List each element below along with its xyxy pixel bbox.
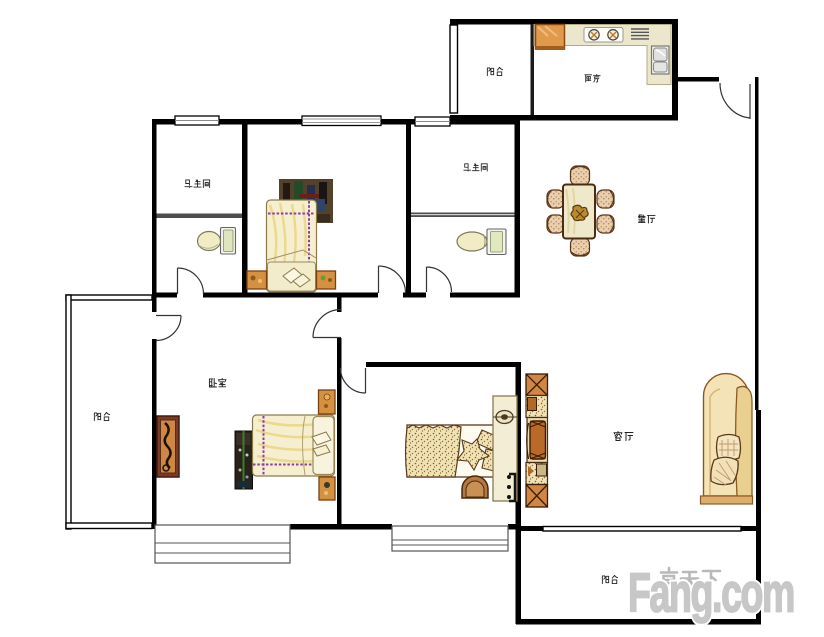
svg-text:Fang.com: Fang.com: [628, 562, 794, 624]
